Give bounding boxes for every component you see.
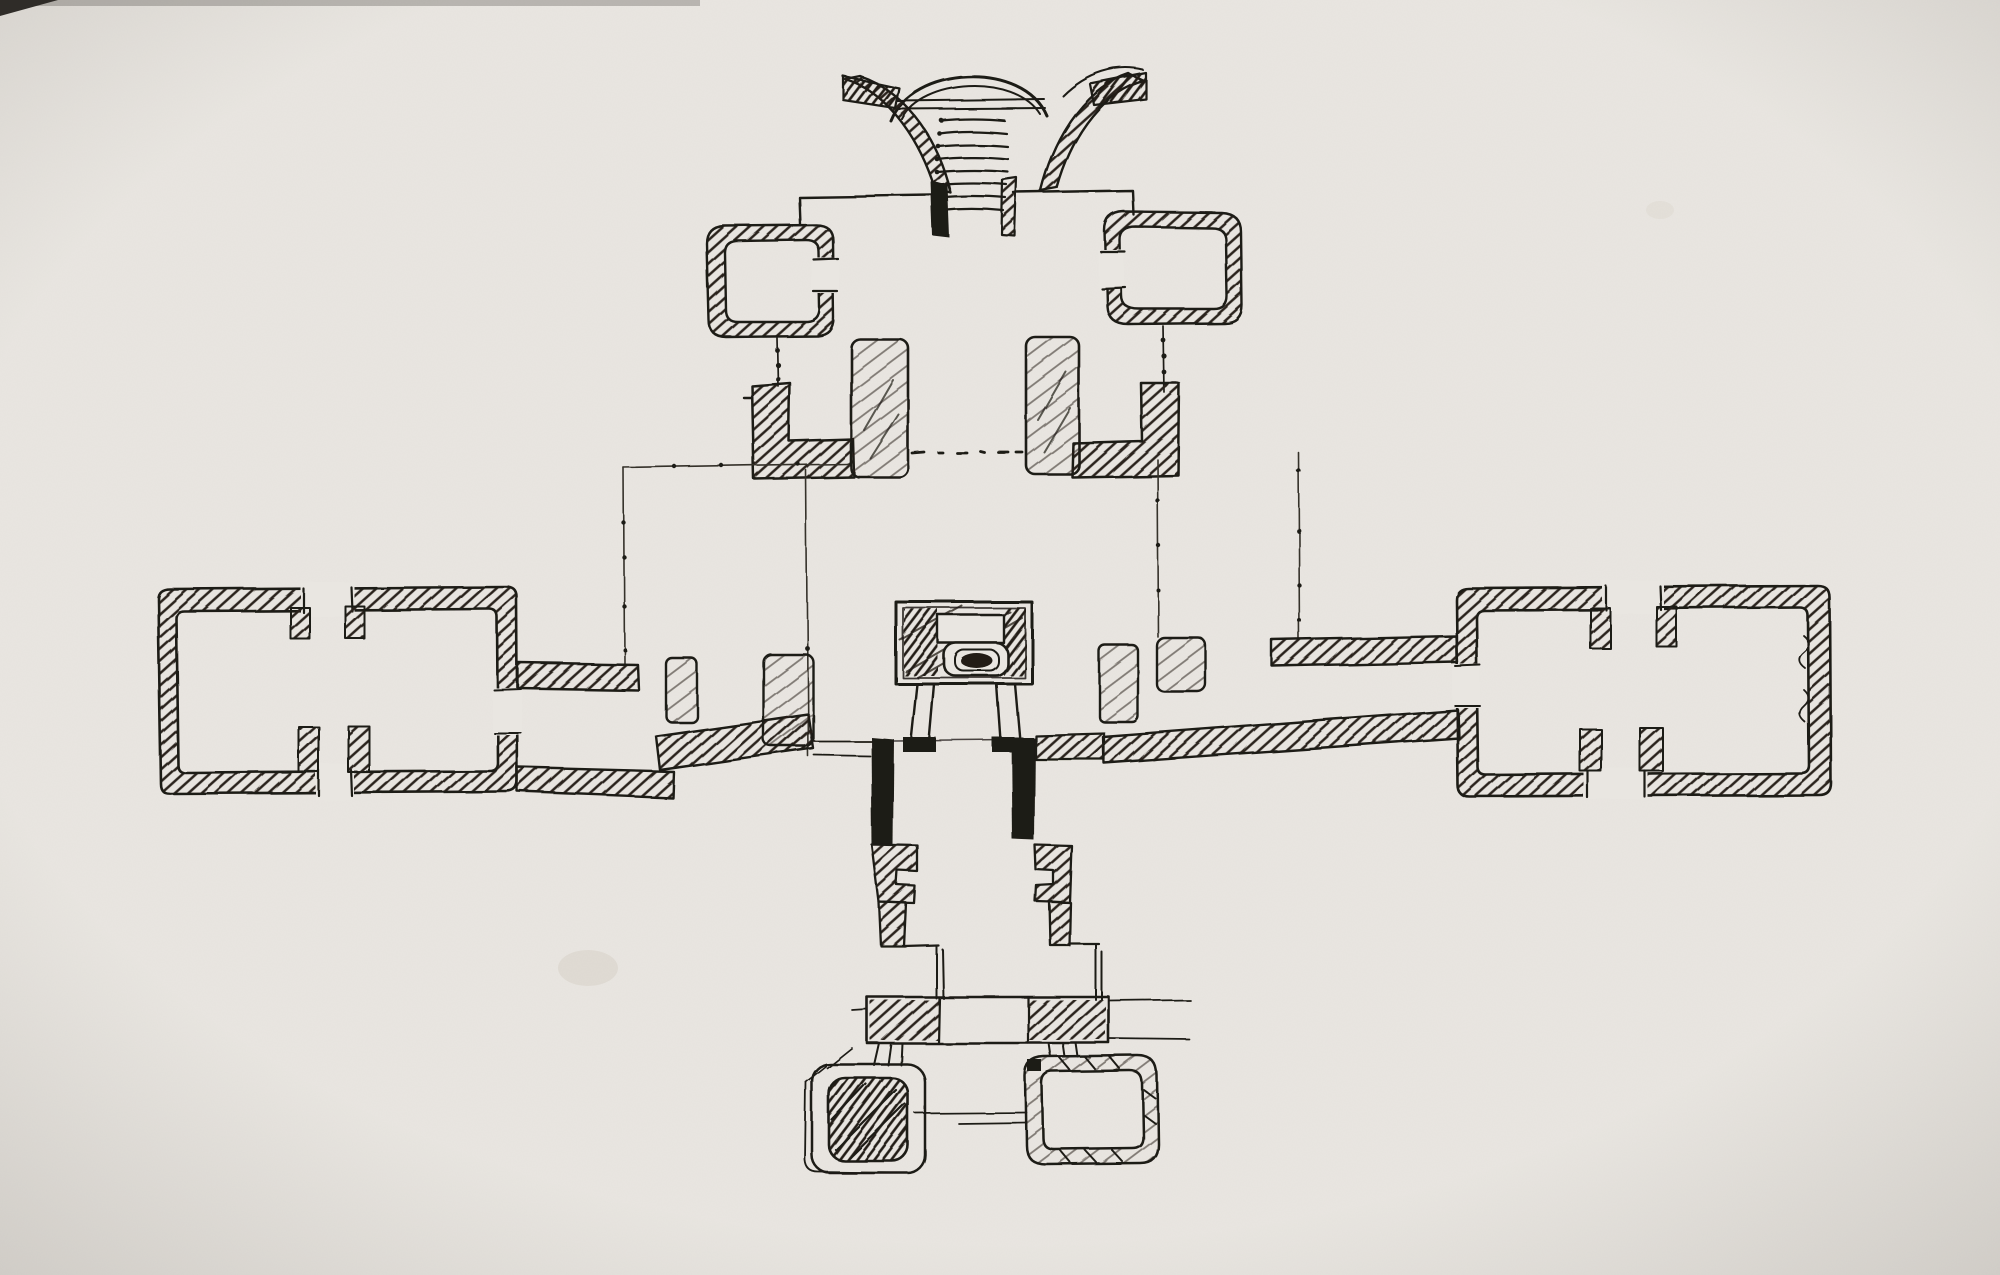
pillar-east bbox=[1026, 337, 1079, 474]
paper-stain bbox=[558, 950, 618, 986]
door-opening bbox=[1602, 580, 1664, 614]
scanned-sketch-page bbox=[0, 0, 2000, 1275]
door-opening bbox=[1584, 768, 1648, 800]
door-opening bbox=[812, 258, 840, 294]
paper-top-edge bbox=[0, 0, 700, 6]
corridor-mouth bbox=[492, 688, 522, 735]
door-opening bbox=[1098, 250, 1124, 288]
sketch-canvas bbox=[0, 0, 2000, 1275]
corridor-mouth bbox=[1452, 664, 1480, 708]
pillar-west bbox=[851, 339, 908, 477]
